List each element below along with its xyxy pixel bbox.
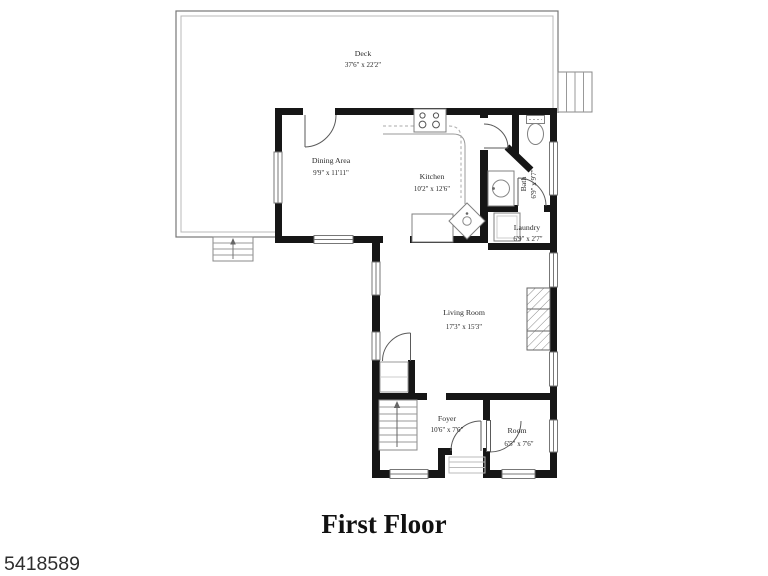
floor-title: First Floor (321, 509, 446, 539)
window-foyer-bottom (390, 470, 428, 479)
foyer-room-name: Foyer (438, 414, 457, 423)
living-room-dims: 17'3" x 15'3" (446, 323, 482, 331)
stove (414, 109, 446, 132)
deck-stairs-left (213, 237, 253, 261)
bath-vanity-sink (488, 171, 514, 206)
deck-edge-mask (557, 113, 565, 239)
window-room-bottom (502, 470, 535, 479)
deck-room-dims: 37'6" x 22'2" (345, 61, 381, 69)
deck-room-name: Deck (355, 49, 372, 58)
floor-plan-page: Deck 37'6" x 22'2" Dining Area 9'9" x 11… (0, 0, 768, 576)
window-room-right (550, 420, 558, 452)
living-room-name: Living Room (443, 308, 485, 317)
bath-room-name: Bath (519, 177, 528, 192)
listing-id: 5418589 (4, 553, 80, 575)
fireplace (527, 288, 550, 350)
floor-plan: Deck 37'6" x 22'2" Dining Area 9'9" x 11… (0, 0, 768, 576)
toilet (527, 116, 545, 145)
window-bath-right (550, 142, 558, 195)
window-living-left-1 (372, 262, 380, 295)
window-dining-bottom (314, 236, 353, 244)
laundry-room-name: Laundry (514, 223, 541, 232)
kitchen-room-dims: 10'2" x 12'6" (414, 185, 450, 193)
staircase (379, 400, 417, 450)
bath-room-dims: 6'9" x 9'7" (530, 169, 538, 198)
dining-room-dims: 9'9" x 11'11" (313, 169, 349, 177)
kitchen-island (412, 214, 453, 242)
window-dining-left (274, 152, 282, 203)
window-living-left-2 (372, 332, 380, 360)
kitchen-room-name: Kitchen (420, 172, 445, 181)
room-room-dims: 6'5" x 7'6" (504, 440, 533, 448)
stair-closet (380, 362, 408, 392)
room-room-name: Room (507, 426, 526, 435)
window-living-right-2 (550, 352, 558, 386)
dining-room-name: Dining Area (312, 156, 351, 165)
window-living-right-1 (550, 253, 558, 287)
laundry-room-dims: 6'9" x 2'7" (513, 235, 542, 243)
foyer-room-dims: 10'6" x 7'6" (431, 426, 464, 434)
deck-stairs-right (558, 72, 592, 112)
